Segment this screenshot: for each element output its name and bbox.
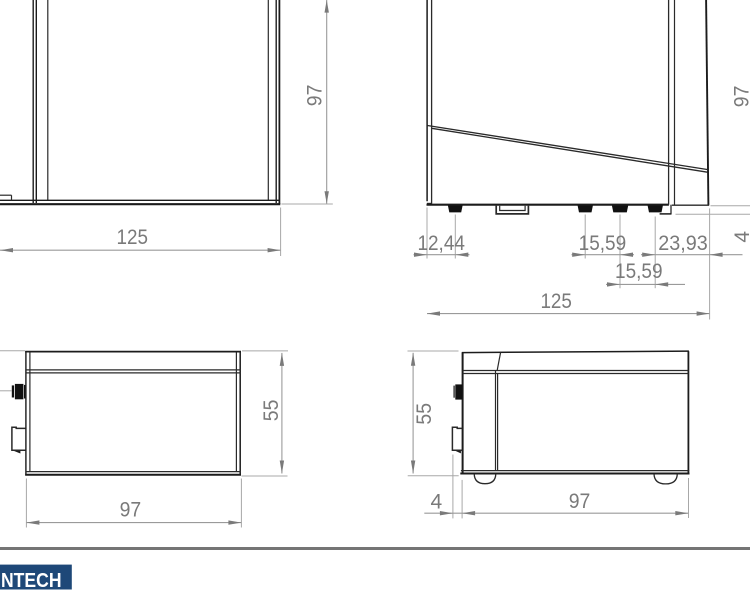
svg-text:4: 4 [430,491,442,514]
svg-text:15,59: 15,59 [615,260,663,283]
svg-text:125: 125 [540,290,572,313]
svg-text:23,93: 23,93 [658,232,708,255]
svg-text:55: 55 [413,403,436,425]
svg-text:55: 55 [260,400,283,422]
svg-text:4: 4 [731,231,750,243]
svg-text:NTECH: NTECH [1,570,62,592]
svg-text:97: 97 [569,490,591,513]
svg-text:12,44: 12,44 [417,232,465,255]
svg-text:97: 97 [731,86,750,108]
svg-text:97: 97 [120,499,142,522]
svg-text:97: 97 [303,85,326,107]
svg-text:15,59: 15,59 [579,232,627,255]
svg-text:125: 125 [117,226,149,249]
